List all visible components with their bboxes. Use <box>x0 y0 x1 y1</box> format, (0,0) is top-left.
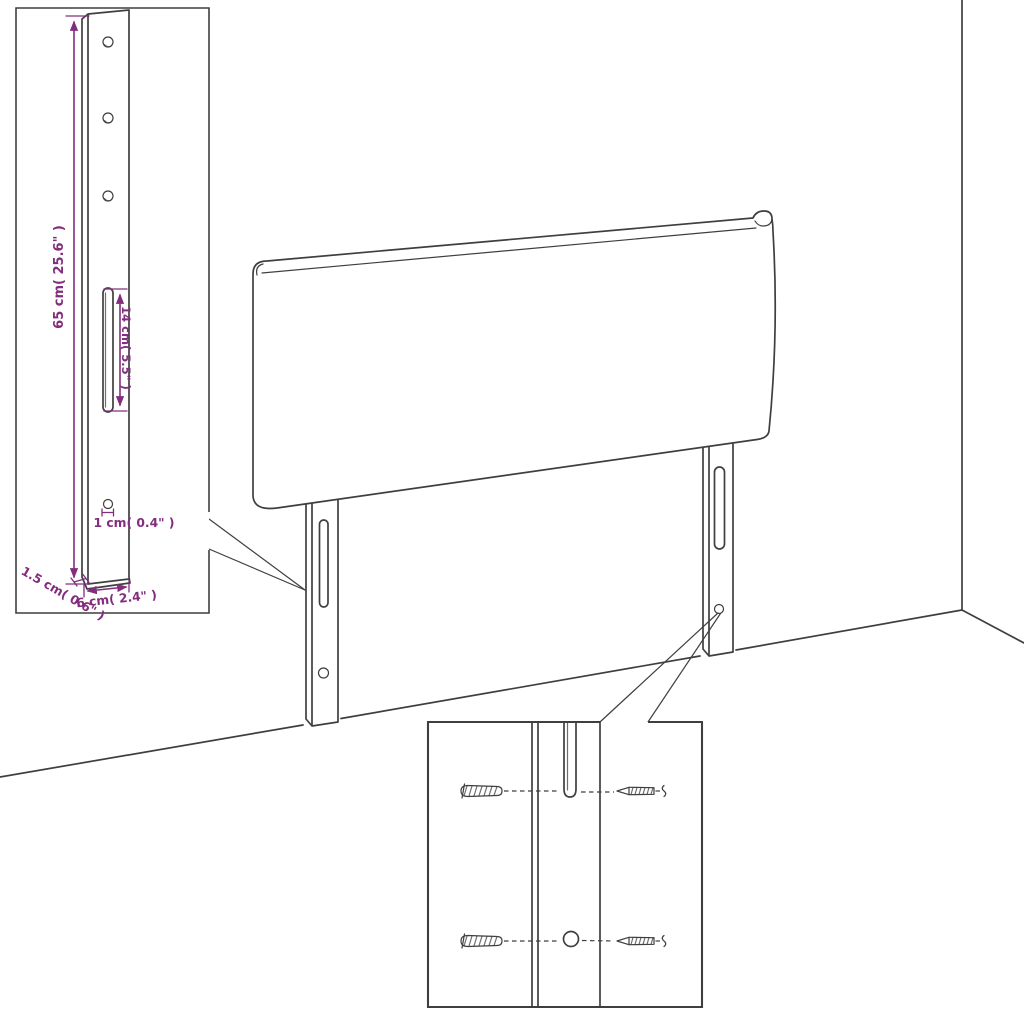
leg-detail-inset: 65 cm( 25.6" ) 14 cm( 5.5" ) 1 cm( 0.4" … <box>16 8 209 623</box>
left-leg-hole <box>319 668 329 678</box>
label-leg-height: 65 cm( 25.6" ) <box>52 225 67 329</box>
fixing-detail-inset-border <box>428 722 702 1007</box>
right-leg-slot <box>715 467 725 549</box>
left-mounting-leg <box>306 495 338 726</box>
floor-line-right <box>962 610 1024 643</box>
right-leg-hole <box>715 605 724 614</box>
fixing-detail-inset <box>428 722 702 1007</box>
left-leg-outline <box>306 495 338 726</box>
headboard-outline <box>253 211 775 509</box>
diagram-canvas: 65 cm( 25.6" ) 14 cm( 5.5" ) 1 cm( 0.4" … <box>0 0 1024 1024</box>
diagram-page: 65 cm( 25.6" ) 14 cm( 5.5" ) 1 cm( 0.4" … <box>0 0 1024 1024</box>
right-mounting-leg <box>703 440 733 656</box>
left-leg-slot <box>320 520 329 607</box>
label-slot-length: 14 cm( 5.5" ) <box>119 306 133 390</box>
callout-lines-leg-detail <box>209 519 305 590</box>
headboard-panel <box>253 211 775 509</box>
label-hole-diameter: 1 cm( 0.4" ) <box>94 516 175 530</box>
